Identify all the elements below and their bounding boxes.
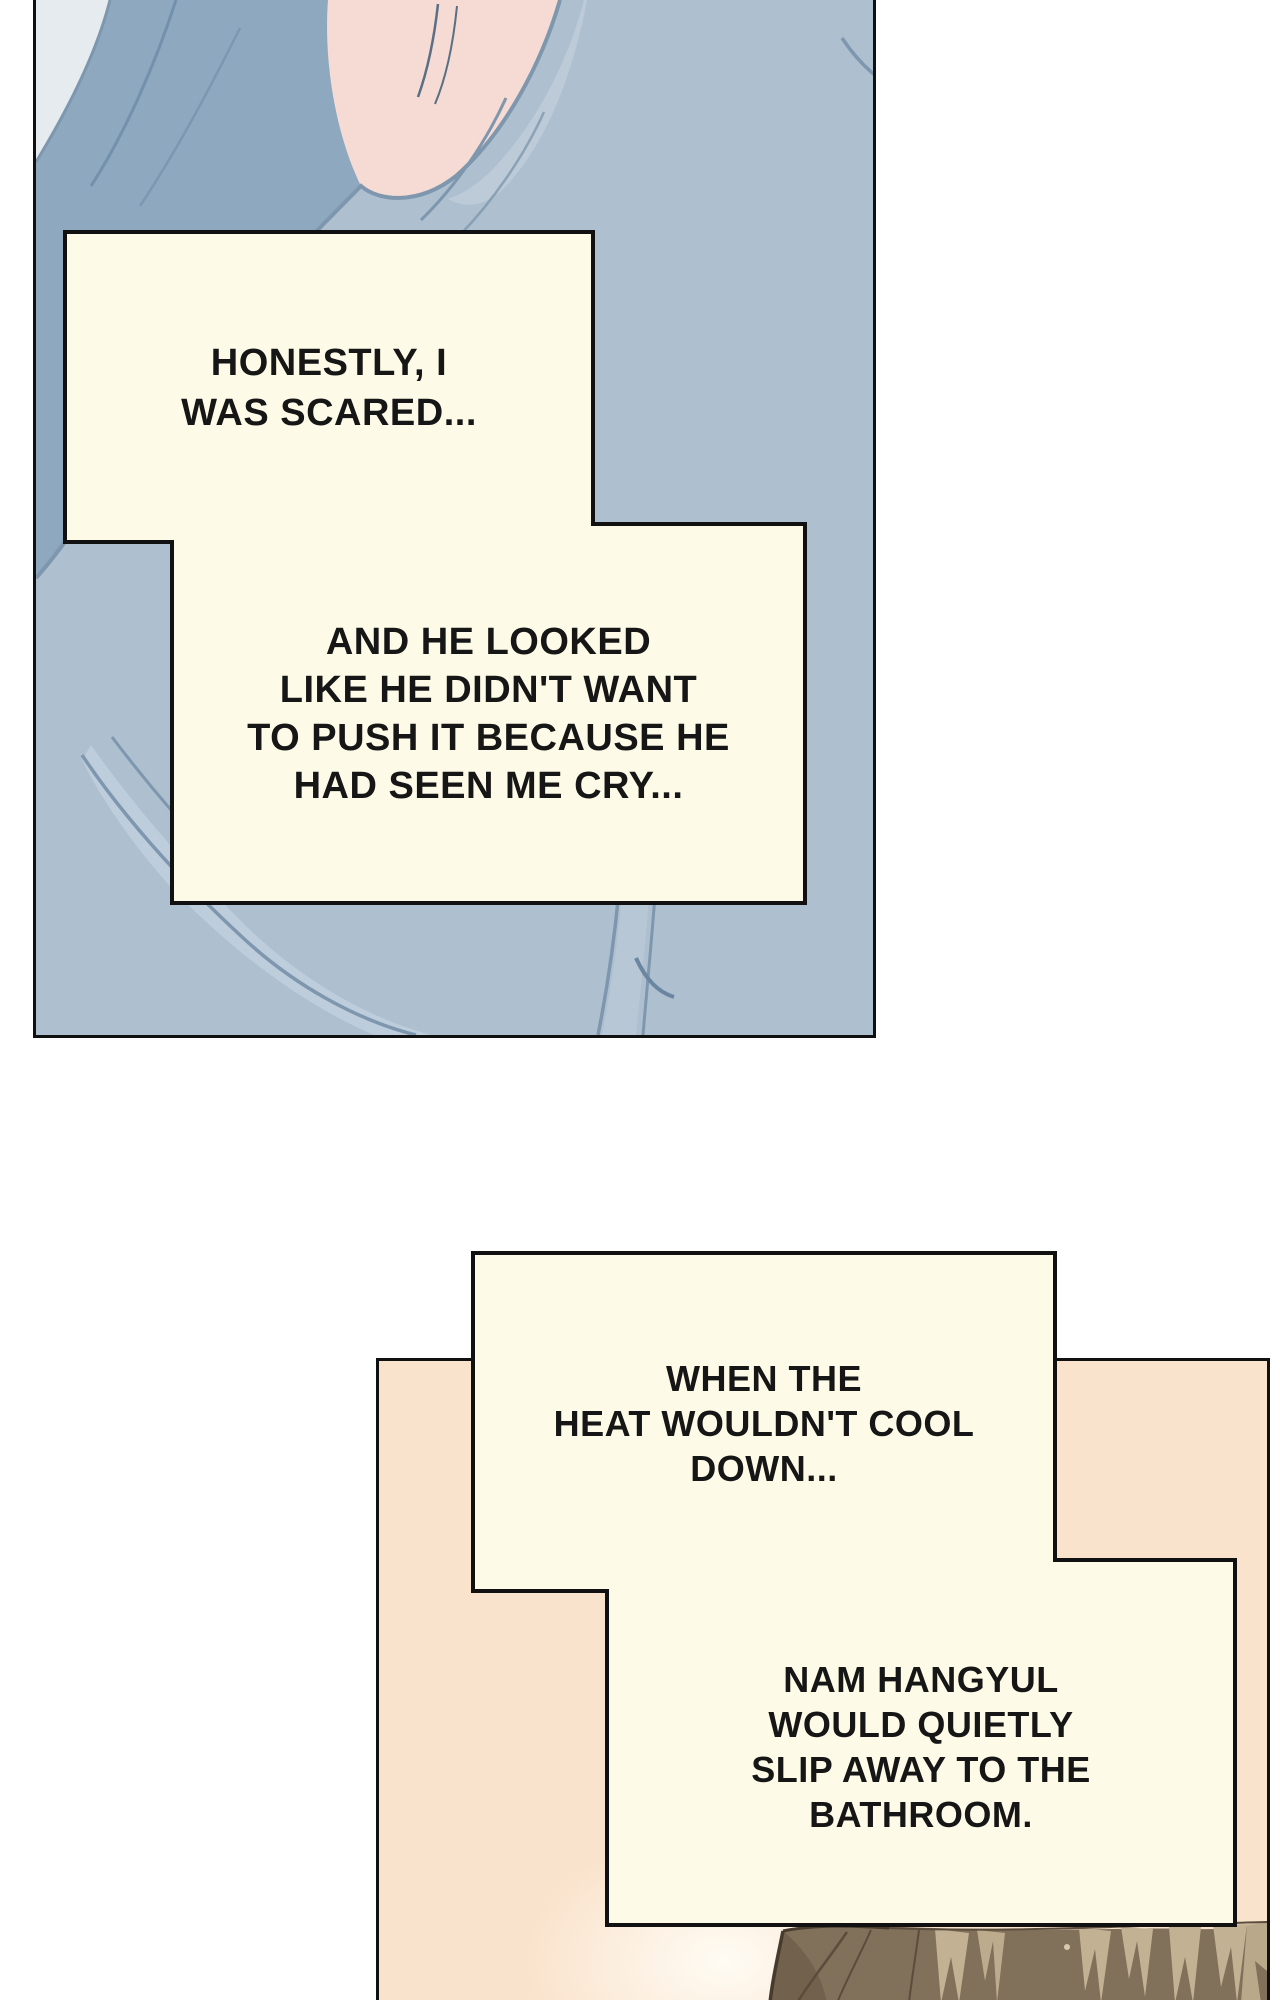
comic-page: HONESTLY, I WAS SCARED... AND HE LOOKED … [0,0,1280,2000]
caption-text-nam-hangyul-bathroom: NAM HANGYUL WOULD QUIETLY SLIP AWAY TO T… [607,1657,1235,1837]
caption-text-he-looked: AND HE LOOKED LIKE HE DIDN'T WANT TO PUS… [172,618,805,810]
caption-text-honestly-scared: HONESTLY, I WAS SCARED... [65,338,593,438]
caption-text-heat-cool-down: WHEN THE HEAT WOULDN'T COOL DOWN... [473,1356,1055,1491]
